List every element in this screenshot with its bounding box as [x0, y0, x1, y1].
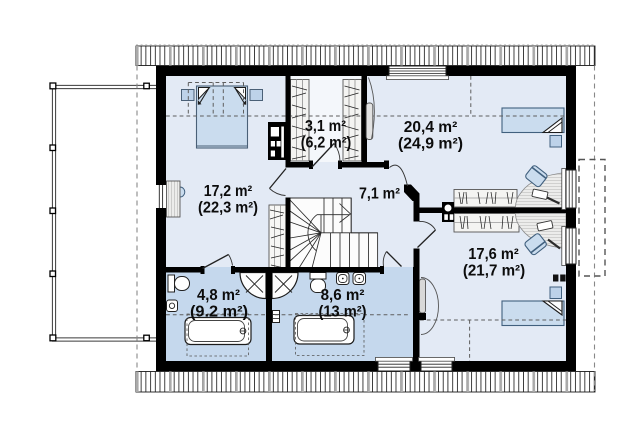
- svg-text:(9.2 m²): (9.2 m²): [190, 304, 248, 321]
- svg-text:8,6 m²: 8,6 m²: [321, 287, 365, 304]
- svg-text:(21,7 m²): (21,7 m²): [463, 263, 525, 280]
- svg-text:(22,3 m²): (22,3 m²): [198, 200, 258, 217]
- svg-text:17,2 m²: 17,2 m²: [204, 183, 253, 200]
- svg-text:3,1 m²: 3,1 m²: [305, 118, 346, 135]
- svg-text:20,4 m²: 20,4 m²: [404, 119, 458, 136]
- svg-text:(13 m²): (13 m²): [319, 304, 367, 321]
- svg-text:7,1 m²: 7,1 m²: [359, 186, 400, 203]
- svg-text:(24,9 m²): (24,9 m²): [398, 136, 463, 153]
- svg-text:4,8 m²: 4,8 m²: [197, 287, 240, 304]
- svg-text:(6,2 m²): (6,2 m²): [301, 135, 352, 152]
- svg-text:17,6 m²: 17,6 m²: [468, 246, 518, 263]
